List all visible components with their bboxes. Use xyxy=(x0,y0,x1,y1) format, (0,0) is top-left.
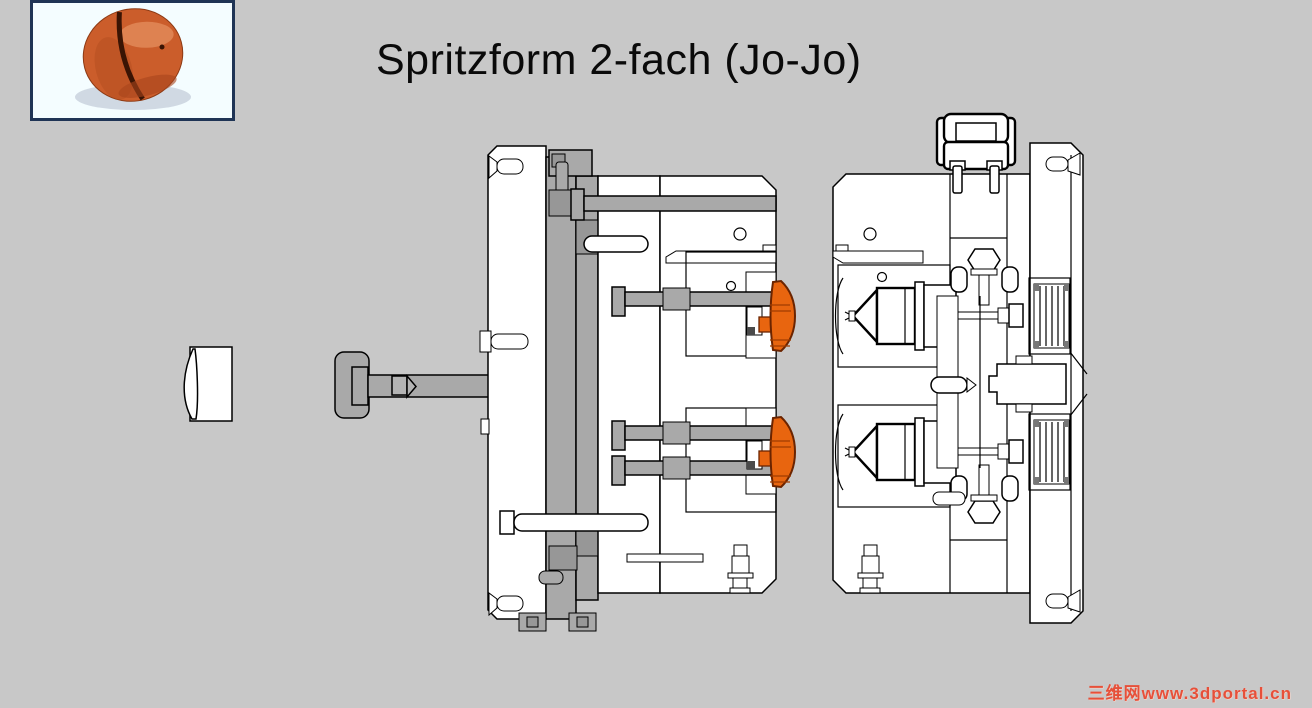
left-cavity-plate xyxy=(660,176,776,593)
guide-pin xyxy=(514,514,648,531)
bolt-lower xyxy=(968,501,1000,523)
keyhole-slot-bottom xyxy=(497,596,523,611)
left-clamp-plate xyxy=(488,146,546,619)
ejector-pin-upper xyxy=(625,292,772,306)
ejector-pin-lower-1 xyxy=(625,426,772,440)
keyhole-slot-bottom-right xyxy=(1046,594,1068,608)
return-pin xyxy=(584,196,776,211)
sprue-puller-pin xyxy=(931,377,967,393)
left-mold-half xyxy=(480,146,795,631)
sprue-bushing xyxy=(989,364,1066,404)
spring-lower xyxy=(1029,414,1070,490)
bolt-upper xyxy=(968,249,1000,271)
latch-bar xyxy=(666,251,776,263)
latch-bar-right xyxy=(833,251,923,263)
side-pin xyxy=(491,334,528,349)
mold-cross-section-drawing xyxy=(0,0,1312,708)
watermark: 三维网www.3dportal.cn xyxy=(1088,679,1292,704)
sprue-piece xyxy=(184,347,232,421)
guide-slot xyxy=(584,236,648,252)
spring-upper xyxy=(1029,278,1070,354)
keyhole-slot-top xyxy=(497,159,523,174)
rod-bolt xyxy=(392,376,407,395)
right-mold-half xyxy=(833,114,1087,623)
keyhole-slot-top-right xyxy=(1046,157,1068,171)
